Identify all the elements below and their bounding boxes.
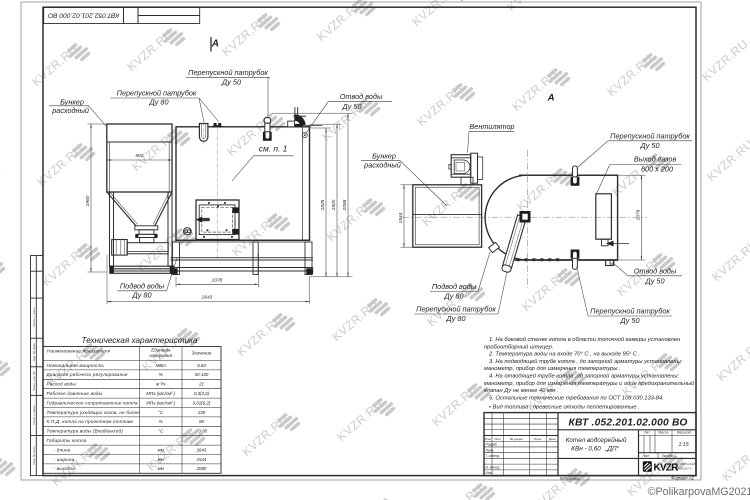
svg-text:Диапазон рабочего регулировани: Диапазон рабочего регулирования [46, 372, 129, 377]
svg-text:Разраб.: Разраб. [486, 443, 498, 447]
svg-text:2. Температура воды на входе: 2. Температура воды на входе 70° С , на … [488, 352, 640, 358]
svg-text:КВн - 0,60: КВн - 0,60 [571, 446, 601, 453]
svg-text:Габариты котла: Габариты котла [47, 438, 87, 443]
svg-text:Н. контр.: Н. контр. [486, 466, 501, 470]
svg-text:Отвод воды: Отвод воды [634, 266, 677, 275]
svg-text:Перепускной патрубок: Перепускной патрубок [117, 89, 197, 98]
svg-text:80: 80 [199, 419, 204, 424]
svg-text:°С: °С [158, 429, 164, 434]
svg-text:Лист: Лист [642, 454, 650, 458]
svg-text:Выход газов: Выход газов [634, 155, 677, 164]
svg-text:Ду 50: Ду 50 [341, 102, 361, 111]
svg-text:Подп. и дата: Подп. и дата [32, 307, 36, 327]
svg-text:1960: 1960 [85, 195, 91, 206]
svg-text:2643: 2643 [201, 295, 213, 301]
svg-text:- ширина: - ширина [54, 457, 75, 462]
svg-text:1078: 1078 [635, 209, 641, 220]
svg-text:30-100: 30-100 [195, 372, 209, 377]
svg-text:- высота: - высота [54, 466, 76, 471]
svg-text:1544: 1544 [398, 212, 404, 223]
svg-text:К.П.Д. котла на проектном топл: К.П.Д. котла на проектном топливе [47, 419, 134, 424]
svg-text:Температура уходящих газов, не: Температура уходящих газов, не более [47, 410, 141, 415]
svg-text:2088: 2088 [342, 199, 348, 211]
svg-text:• Вид топлива : древесные от: • Вид топлива : древесные отходы пеллети… [489, 405, 640, 411]
svg-text:Наименование показателя: Наименование показателя [47, 349, 111, 354]
svg-text:мм: мм [158, 457, 164, 462]
svg-text:2080: 2080 [196, 466, 207, 471]
svg-text:мм: мм [158, 466, 164, 471]
svg-text:КВТ .052.201.02.000 ВО: КВТ .052.201.02.000 ВО [568, 418, 687, 429]
svg-text:Температура воды (Вход/выход): Температура воды (Вход/выход) [47, 429, 124, 434]
svg-text:1544: 1544 [197, 457, 207, 462]
svg-text:Ду 80: Ду 80 [131, 291, 151, 300]
svg-text:4. На отводящей трубе котла ,: 4. На отводящей трубе котла ,до запорной… [489, 373, 680, 380]
svg-text:м ³/ч: м ³/ч [156, 382, 166, 387]
svg-text:Подп. и дата: Подп. и дата [32, 405, 36, 425]
svg-text:см. п. 1: см. п. 1 [259, 144, 288, 154]
svg-text:Бункер: Бункер [372, 152, 396, 161]
svg-text:Подп.: Подп. [534, 437, 542, 441]
svg-text:Лит.: Лит. [644, 431, 650, 435]
svg-text:2643: 2643 [196, 447, 207, 452]
svg-text:КОТЕЛЬНЫЙ: КОТЕЛЬНЫЙ [677, 462, 696, 466]
svg-text:№ докум.: № докум. [510, 437, 524, 441]
svg-text:„ДП“: „ДП“ [604, 446, 619, 453]
svg-text:Утв.: Утв. [486, 471, 494, 475]
svg-text:Взам. инв. №: Взам. инв. № [32, 371, 36, 391]
svg-text:Подвод воды: Подвод воды [120, 281, 165, 290]
svg-text:0,60: 0,60 [197, 363, 206, 368]
svg-text:Отвод воды: Отвод воды [340, 92, 383, 101]
svg-text:1. На боковой стенке котла в: 1. На боковой стенке котла в области топ… [489, 336, 681, 343]
svg-text:манометр, прибор для измерени: манометр, прибор для измерения температу… [484, 366, 621, 372]
svg-text:измерения: измерения [149, 353, 172, 358]
svg-text:1078: 1078 [212, 278, 223, 284]
svg-text:70-95: 70-95 [196, 429, 208, 434]
svg-text:Формат А2: Формат А2 [671, 475, 695, 480]
svg-text:- длина: - длина [54, 447, 71, 452]
svg-text:Номинальная мощность: Номинальная мощность [47, 363, 105, 368]
svg-text:Перепускной патрубок: Перепускной патрубок [590, 307, 670, 316]
svg-text:Инв. № дубл.: Инв. № дубл. [32, 342, 36, 361]
svg-text:21: 21 [198, 382, 204, 387]
svg-text:Инв. № подл.: Инв. № подл. [32, 445, 36, 464]
svg-text:0,3(3,0): 0,3(3,0) [194, 391, 210, 396]
svg-text:Ду 80: Ду 80 [443, 291, 463, 300]
svg-text:Перепускной патрубок: Перепускной патрубок [610, 131, 690, 140]
svg-text:%: % [159, 372, 163, 377]
svg-text:Т. контр.: Т. контр. [486, 454, 500, 458]
svg-text:°С: °С [158, 410, 164, 415]
svg-text:1:15: 1:15 [679, 442, 689, 448]
svg-text:Перепускной патрубок: Перепускной патрубок [416, 305, 496, 314]
svg-text:Лист: Лист [494, 437, 501, 441]
svg-text:5. Остальные технические треб: 5. Остальные технические требования по О… [489, 395, 664, 401]
svg-text:Ду 50: Ду 50 [221, 78, 241, 87]
svg-text:Масса: Масса [658, 431, 668, 435]
svg-text:манометр, прибор для измерения: манометр, прибор для измерения температу… [484, 380, 695, 387]
svg-text:Ду 50: Ду 50 [619, 316, 639, 325]
svg-text:КВТ.052.201.02.000 ВО: КВТ.052.201.02.000 ВО [47, 11, 119, 18]
svg-text:230: 230 [197, 410, 206, 415]
svg-text:МПа (кгс/см² ): МПа (кгс/см² ) [146, 391, 175, 396]
svg-text:ЗАВОД Р.У.: ЗАВОД Р.У. [677, 466, 693, 470]
svg-text:Копировал: Копировал [560, 475, 581, 480]
svg-text:Ду 50: Ду 50 [644, 276, 664, 285]
svg-text:3. На подводящей трубе котла: 3. На подводящей трубе котла , до запорн… [489, 358, 683, 365]
svg-text:Изм: Изм [485, 437, 491, 441]
svg-text:клапан Ду не менее 40 мм .: клапан Ду не менее 40 мм . [484, 388, 558, 394]
svg-text:А: А [211, 39, 219, 50]
svg-text:Значение: Значение [192, 351, 212, 356]
svg-text:Перепускной патрубок: Перепускной патрубок [188, 68, 268, 77]
svg-text:Котел водогрейный: Котел водогрейный [566, 436, 627, 444]
svg-text:Ду 50: Ду 50 [639, 141, 659, 150]
svg-text:KVZR: KVZR [654, 462, 679, 473]
svg-text:Расход воды: Расход воды [47, 382, 77, 387]
svg-text:МПа (кгс/см² ): МПа (кгс/см² ) [146, 400, 175, 405]
svg-text:Ду 80: Ду 80 [445, 314, 465, 323]
svg-text:1825: 1825 [320, 199, 326, 210]
svg-text:Техническая характеристика: Техническая характеристика [82, 336, 198, 345]
svg-text:1920: 1920 [331, 199, 337, 210]
svg-text:Ду 80: Ду 80 [148, 98, 168, 107]
svg-text:МВт: МВт [156, 363, 167, 368]
svg-text:Масштаб: Масштаб [677, 431, 692, 435]
svg-text:Листов 1: Листов 1 [662, 454, 676, 458]
svg-text:расходный: расходный [51, 106, 89, 115]
svg-text:902: 902 [135, 153, 143, 159]
svg-text:0,02(0,2): 0,02(0,2) [193, 400, 211, 405]
svg-text:пробоотборный штуцер.: пробоотборный штуцер. [484, 343, 553, 350]
svg-text:Единицы: Единицы [151, 348, 171, 353]
svg-text:600 х 200: 600 х 200 [641, 164, 673, 173]
svg-text:расходный: расходный [363, 161, 401, 170]
svg-text:А: А [547, 93, 555, 104]
svg-text:Подвод воды: Подвод воды [432, 282, 477, 291]
svg-text:Гидравлическое сопротивление к: Гидравлическое сопротивление котла [47, 400, 138, 405]
svg-text:Рабочее давление воды: Рабочее давление воды [47, 391, 103, 396]
svg-text:мм: мм [158, 447, 164, 452]
svg-text:Дата: Дата [549, 437, 556, 441]
svg-text:Пров.: Пров. [486, 448, 495, 452]
svg-text:%: % [159, 419, 163, 424]
svg-text:©PolikarpovaMG2021: ©PolikarpovaMG2021 [648, 486, 750, 498]
svg-text:Вентилятор: Вентилятор [469, 122, 514, 131]
